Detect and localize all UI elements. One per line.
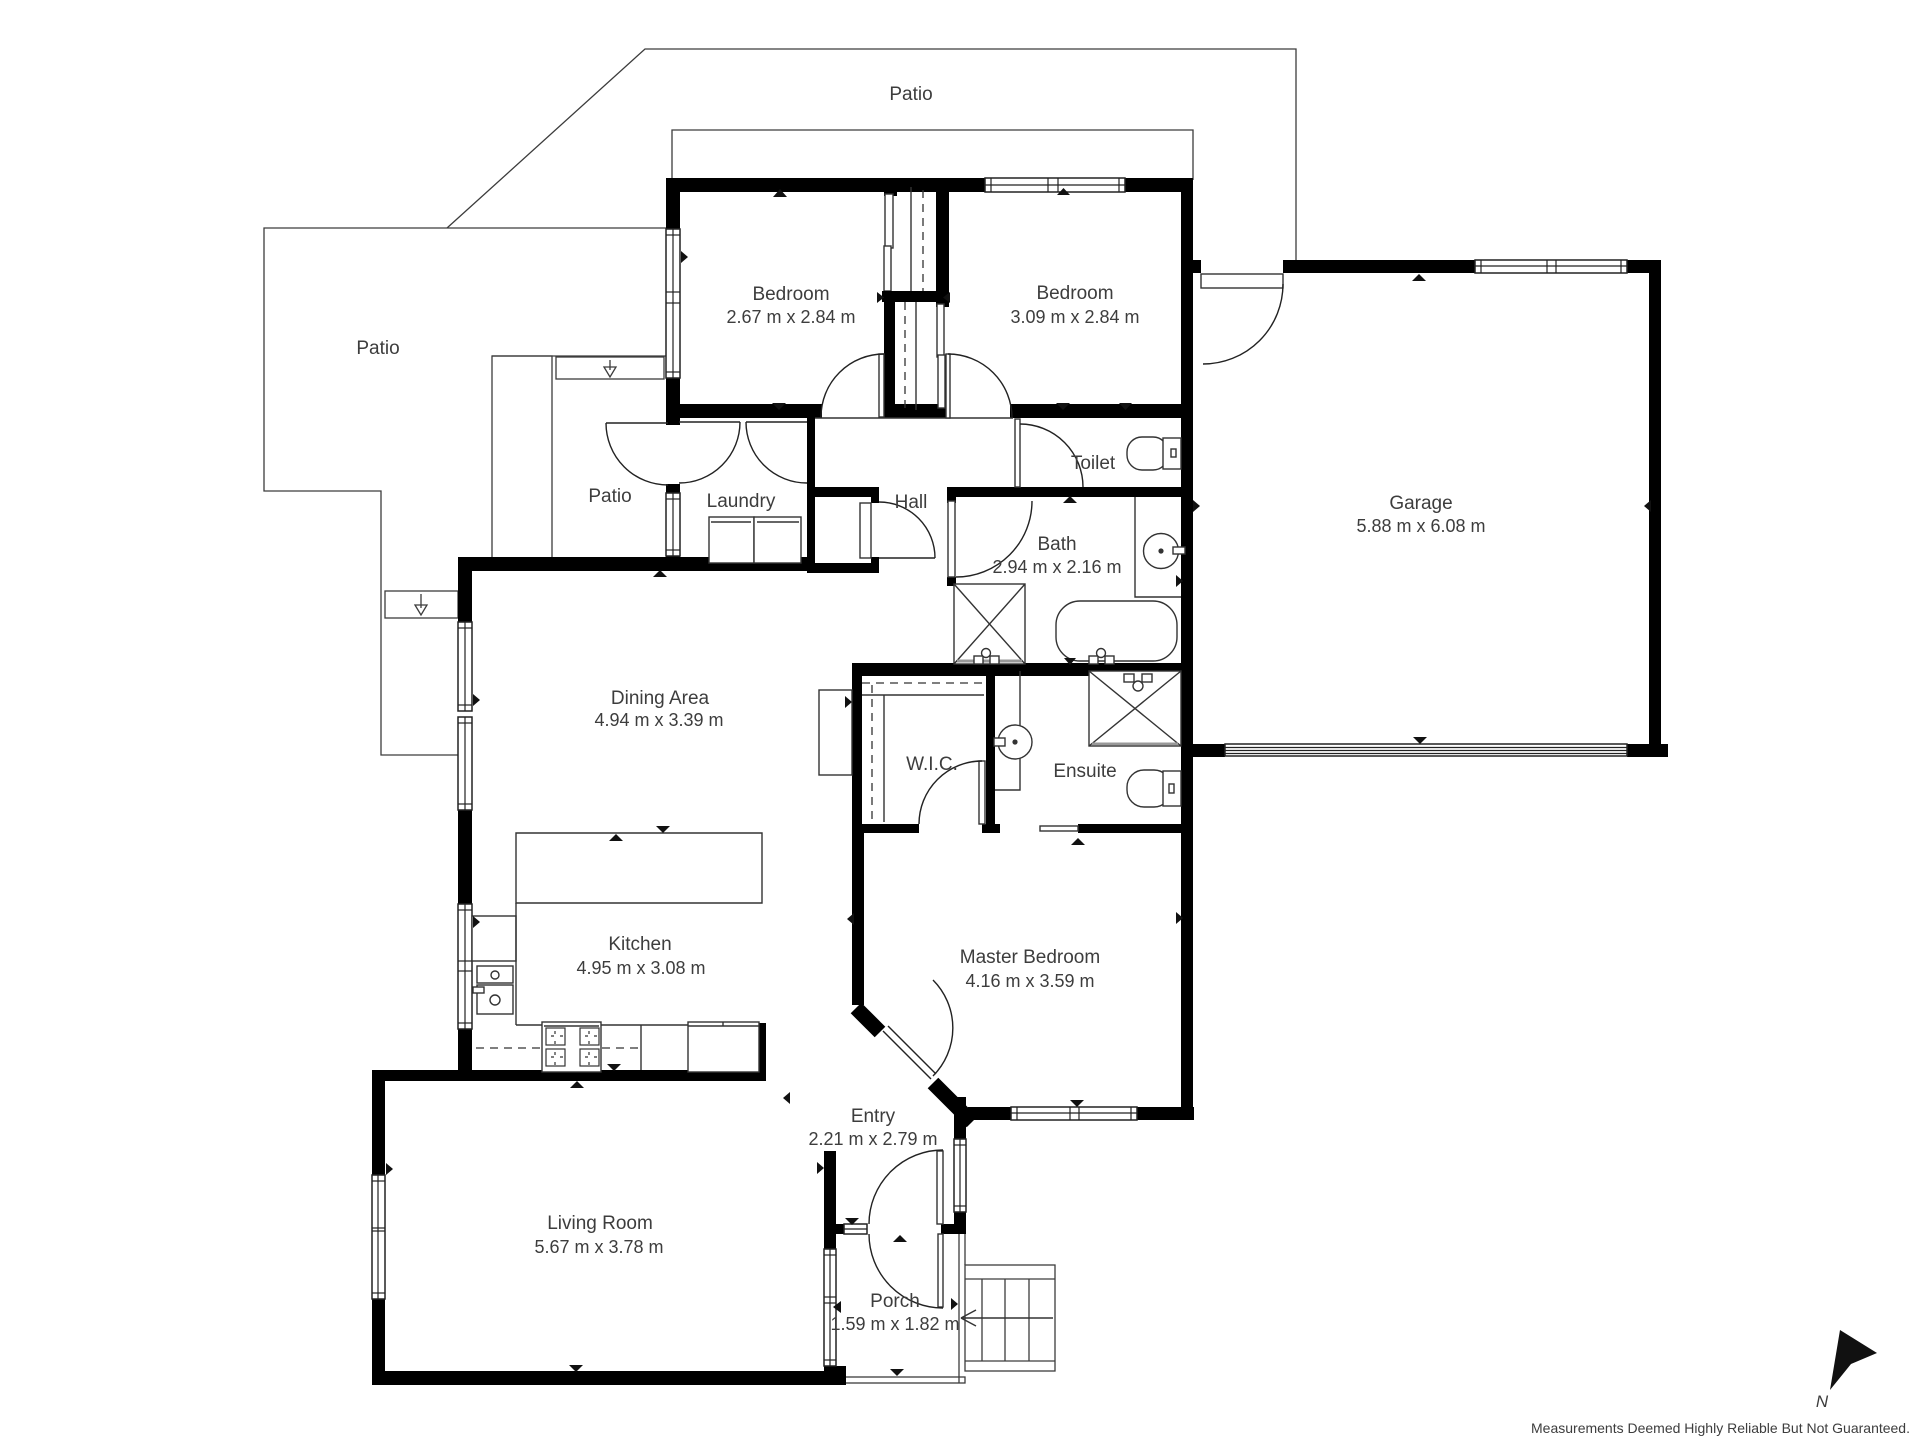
svg-text:Master Bedroom: Master Bedroom: [960, 947, 1100, 968]
svg-text:3.09 m x 2.84 m: 3.09 m x 2.84 m: [1010, 307, 1139, 327]
svg-text:Bedroom: Bedroom: [1036, 283, 1113, 304]
svg-text:Living Room: Living Room: [547, 1213, 653, 1234]
svg-text:2.21 m x 2.79 m: 2.21 m x 2.79 m: [808, 1129, 937, 1149]
svg-text:1.59 m x 1.82 m: 1.59 m x 1.82 m: [830, 1314, 959, 1334]
svg-text:2.94 m x 2.16 m: 2.94 m x 2.16 m: [992, 557, 1121, 577]
svg-text:Kitchen: Kitchen: [608, 934, 671, 955]
svg-text:Toilet: Toilet: [1071, 453, 1116, 474]
svg-text:4.95 m x 3.08 m: 4.95 m x 3.08 m: [576, 958, 705, 978]
svg-text:N: N: [1816, 1392, 1829, 1411]
svg-text:Entry: Entry: [851, 1106, 896, 1127]
svg-text:4.94 m x 3.39 m: 4.94 m x 3.39 m: [594, 710, 723, 730]
svg-text:W.I.C.: W.I.C.: [906, 754, 958, 775]
svg-text:4.16 m x 3.59 m: 4.16 m x 3.59 m: [965, 971, 1094, 991]
svg-text:Patio: Patio: [889, 84, 932, 105]
svg-text:Dining Area: Dining Area: [611, 688, 710, 709]
svg-text:Ensuite: Ensuite: [1053, 761, 1116, 782]
svg-text:2.67 m x 2.84 m: 2.67 m x 2.84 m: [726, 307, 855, 327]
svg-text:Hall: Hall: [895, 492, 928, 513]
svg-text:Bedroom: Bedroom: [752, 284, 829, 305]
svg-text:Porch: Porch: [870, 1291, 920, 1312]
svg-text:Measurements Deemed Highly Rel: Measurements Deemed Highly Reliable But …: [1531, 1420, 1910, 1436]
svg-text:Patio: Patio: [588, 486, 631, 507]
svg-text:5.88 m x 6.08 m: 5.88 m x 6.08 m: [1356, 516, 1485, 536]
svg-text:Garage: Garage: [1389, 493, 1452, 514]
svg-text:Laundry: Laundry: [707, 491, 776, 512]
svg-text:5.67 m x 3.78 m: 5.67 m x 3.78 m: [534, 1237, 663, 1257]
svg-text:Patio: Patio: [356, 338, 399, 359]
svg-text:Bath: Bath: [1037, 534, 1076, 555]
